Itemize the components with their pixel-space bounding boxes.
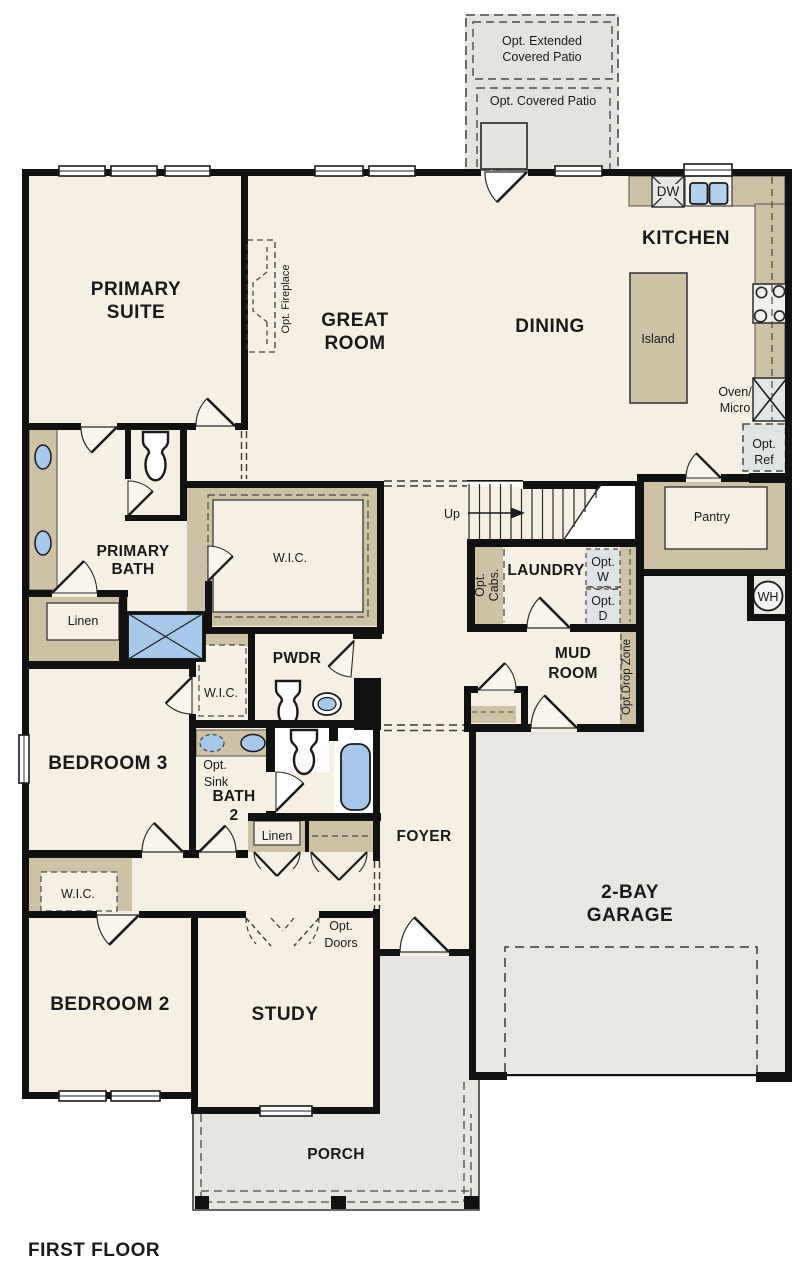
- svg-text:2-BAY: 2-BAY: [601, 882, 659, 903]
- svg-text:GREAT: GREAT: [321, 310, 389, 331]
- svg-text:Up: Up: [444, 507, 460, 521]
- svg-text:BATH: BATH: [111, 561, 154, 578]
- svg-text:Ref: Ref: [754, 453, 774, 467]
- svg-text:2: 2: [230, 807, 239, 824]
- svg-text:Opt.: Opt.: [752, 437, 776, 451]
- svg-text:DW: DW: [657, 184, 680, 199]
- svg-text:KITCHEN: KITCHEN: [642, 228, 730, 249]
- svg-text:Pantry: Pantry: [694, 510, 731, 524]
- svg-text:Opt. Covered Patio: Opt. Covered Patio: [490, 94, 596, 108]
- svg-text:Opt.: Opt.: [473, 573, 487, 597]
- svg-text:PRIMARY: PRIMARY: [91, 279, 181, 300]
- svg-text:FOYER: FOYER: [397, 828, 452, 845]
- svg-text:W.I.C.: W.I.C.: [273, 551, 307, 565]
- svg-text:BEDROOM 3: BEDROOM 3: [48, 753, 168, 774]
- svg-text:Linen: Linen: [68, 614, 99, 628]
- svg-text:Opt.: Opt.: [203, 758, 227, 772]
- svg-text:D: D: [598, 609, 607, 623]
- svg-text:Sink: Sink: [204, 775, 229, 789]
- svg-text:Micro: Micro: [720, 401, 751, 415]
- svg-text:STUDY: STUDY: [252, 1004, 319, 1025]
- svg-text:Opt.: Opt.: [329, 919, 353, 933]
- svg-text:SUITE: SUITE: [107, 302, 165, 323]
- svg-text:Island: Island: [641, 332, 674, 346]
- svg-text:LAUNDRY: LAUNDRY: [507, 562, 585, 579]
- svg-text:MUD: MUD: [555, 645, 591, 662]
- svg-text:W.I.C.: W.I.C.: [204, 686, 238, 700]
- svg-text:PRIMARY: PRIMARY: [96, 543, 169, 560]
- svg-text:Opt.: Opt.: [591, 555, 615, 569]
- svg-text:Oven/: Oven/: [718, 385, 752, 399]
- svg-text:Linen: Linen: [262, 829, 293, 843]
- svg-text:Opt.: Opt.: [591, 594, 615, 608]
- svg-text:Opt. Extended: Opt. Extended: [502, 34, 582, 48]
- svg-text:PWDR: PWDR: [273, 650, 322, 667]
- svg-text:ROOM: ROOM: [324, 333, 385, 354]
- svg-text:Opt. Fireplace: Opt. Fireplace: [280, 264, 292, 333]
- svg-text:Covered Patio: Covered Patio: [502, 50, 581, 64]
- svg-text:FIRST FLOOR: FIRST FLOOR: [28, 1240, 160, 1261]
- svg-text:Cabs.: Cabs.: [487, 569, 501, 602]
- svg-text:Doors: Doors: [324, 936, 357, 950]
- svg-text:W.I.C.: W.I.C.: [61, 887, 95, 901]
- svg-text:PORCH: PORCH: [307, 1146, 364, 1163]
- svg-text:W: W: [597, 570, 609, 584]
- svg-text:BEDROOM 2: BEDROOM 2: [50, 994, 170, 1015]
- svg-text:BATH: BATH: [212, 788, 255, 805]
- svg-text:DINING: DINING: [515, 316, 585, 337]
- svg-text:GARAGE: GARAGE: [587, 905, 673, 926]
- svg-text:Opt.Drop Zone: Opt.Drop Zone: [621, 639, 633, 715]
- svg-text:WH: WH: [758, 590, 779, 604]
- svg-text:ROOM: ROOM: [548, 665, 597, 682]
